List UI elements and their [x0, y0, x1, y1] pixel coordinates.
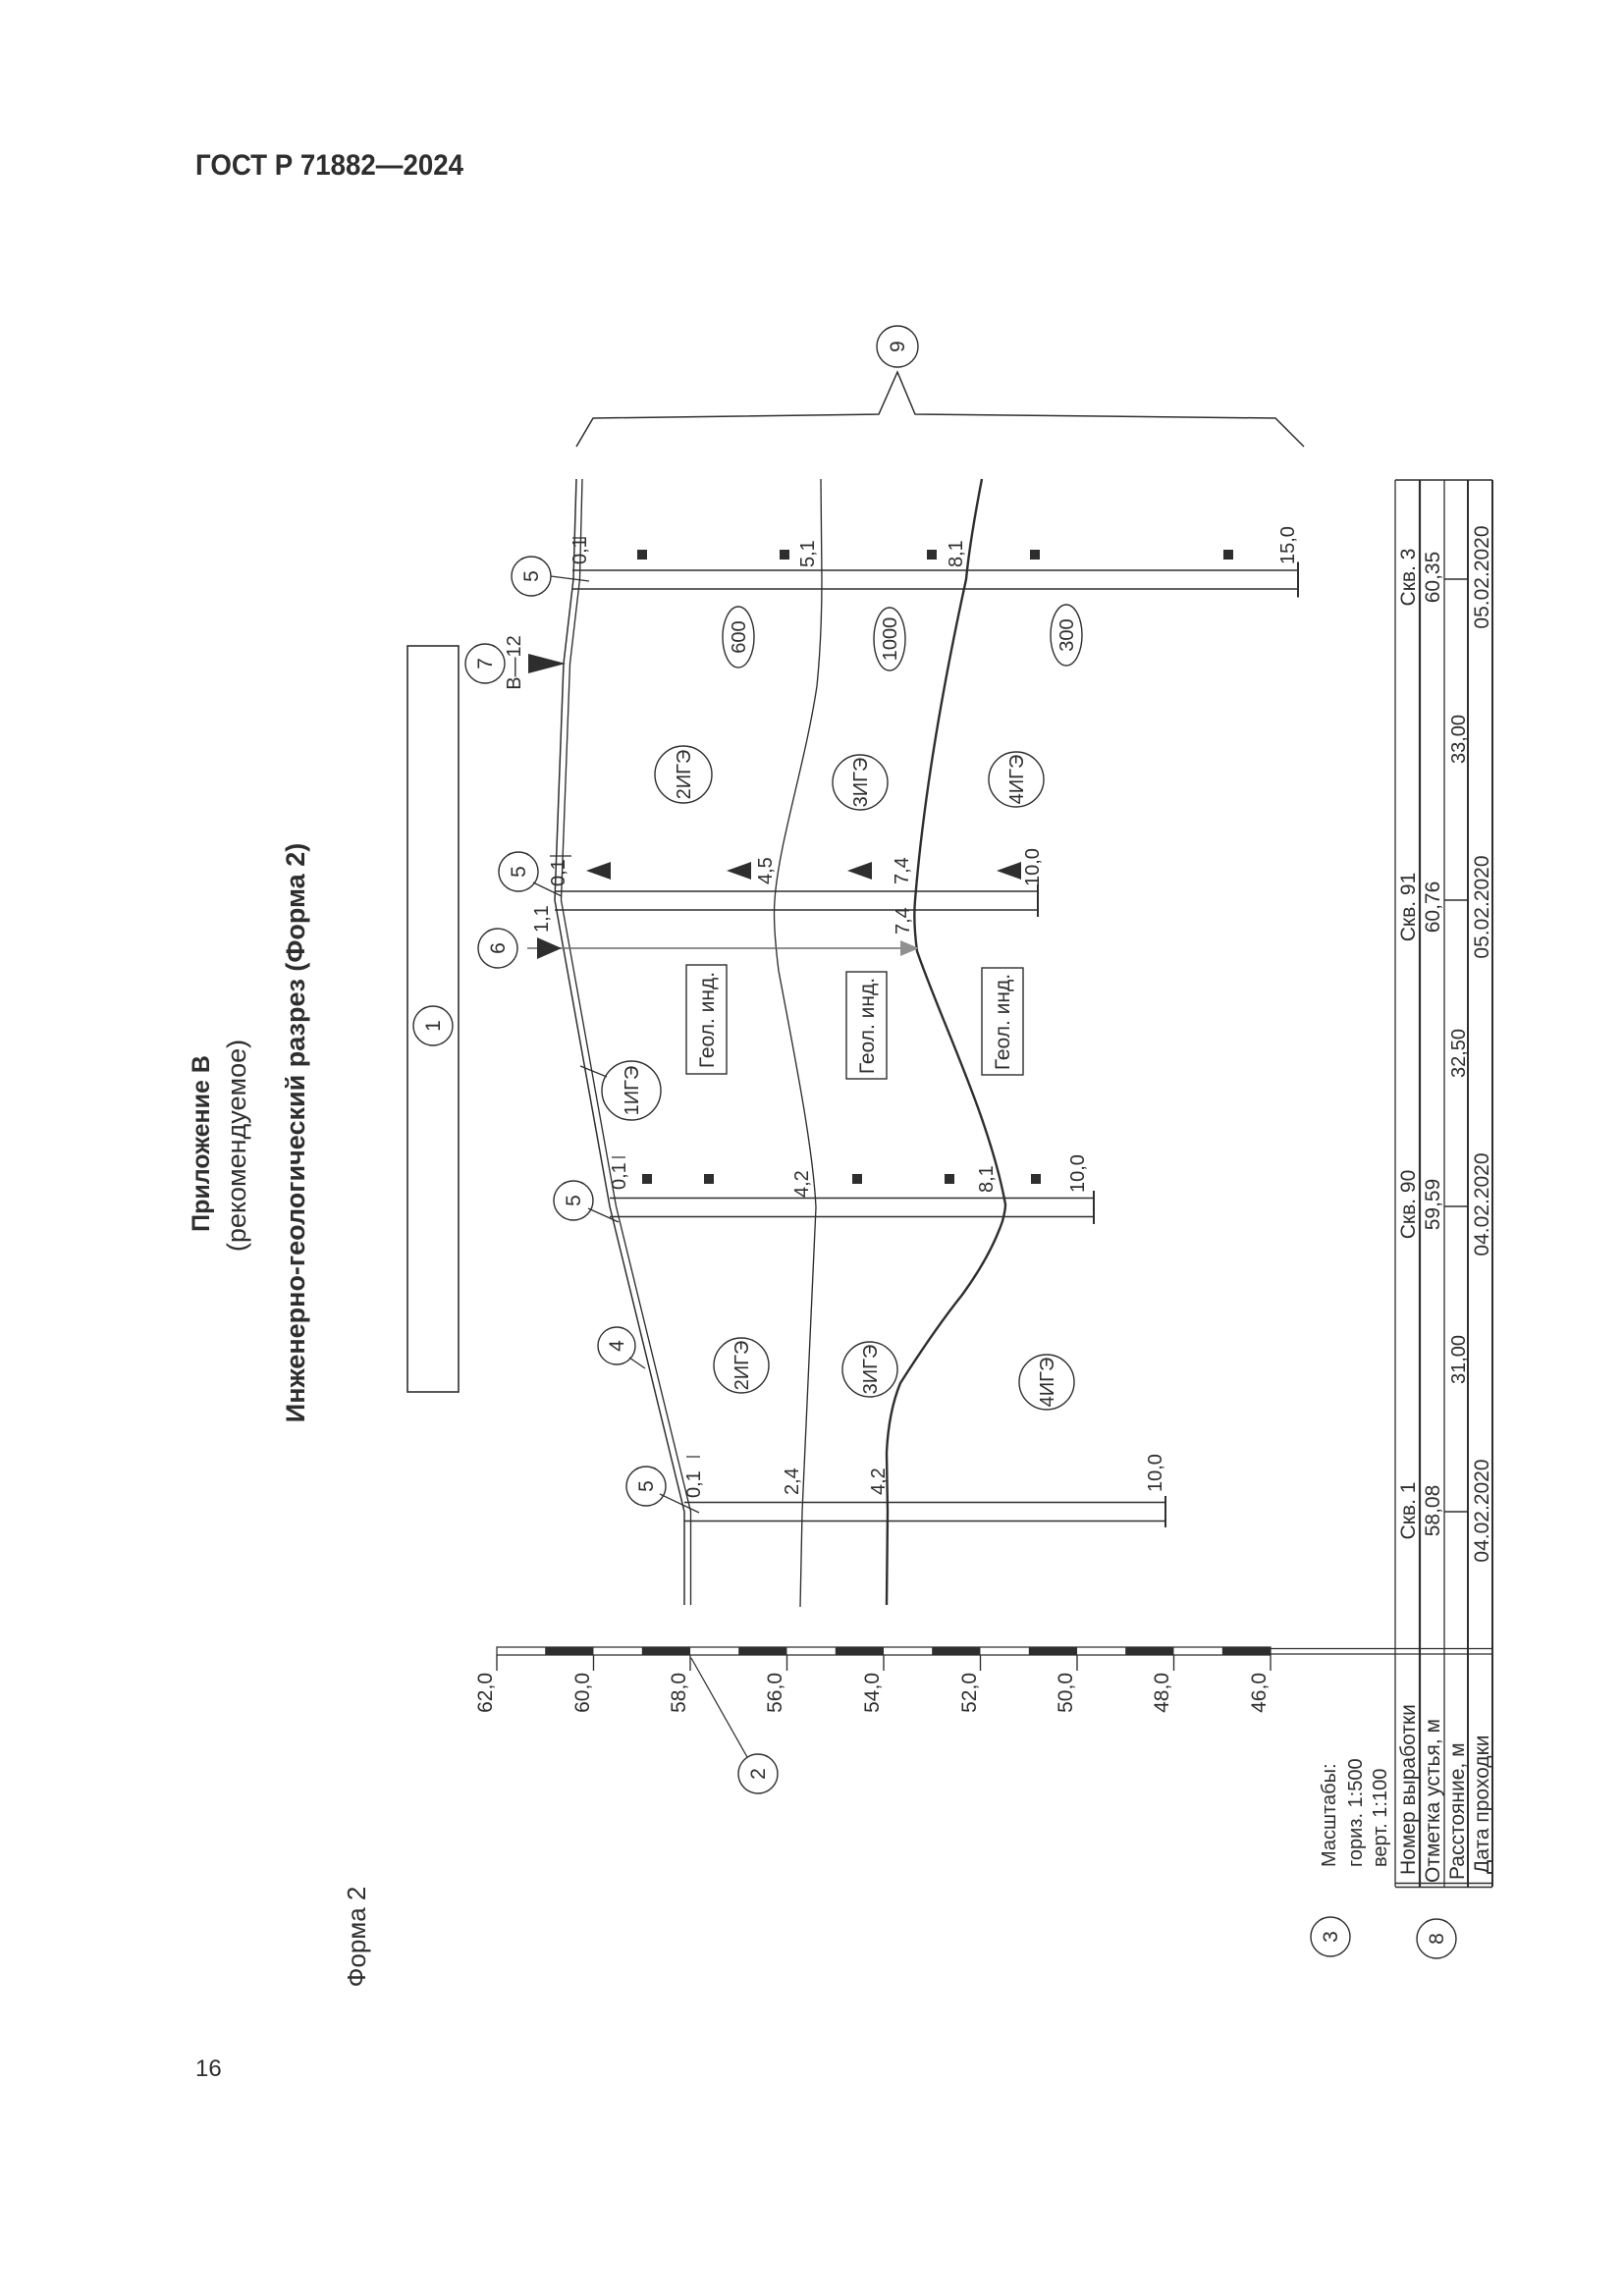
- svg-text:(рекомендуемое): (рекомендуемое): [222, 1040, 251, 1252]
- svg-text:3ИГЭ: 3ИГЭ: [860, 1345, 882, 1395]
- svg-text:Скв. 3: Скв. 3: [1397, 549, 1420, 607]
- svg-text:0,1: 0,1: [683, 1470, 705, 1498]
- svg-text:2: 2: [747, 1768, 770, 1780]
- svg-text:3ИГЭ: 3ИГЭ: [850, 758, 872, 808]
- svg-text:Скв. 1: Скв. 1: [1397, 1482, 1420, 1540]
- svg-text:1: 1: [422, 1020, 445, 1032]
- svg-text:46,0: 46,0: [1248, 1673, 1271, 1713]
- svg-text:верт. 1:100: верт. 1:100: [1370, 1769, 1391, 1867]
- svg-text:7: 7: [474, 658, 497, 669]
- svg-text:05.02.2020: 05.02.2020: [1471, 855, 1493, 958]
- svg-text:8,1: 8,1: [976, 1165, 998, 1193]
- svg-text:Скв. 90: Скв. 90: [1397, 1170, 1420, 1240]
- svg-text:0,1: 0,1: [609, 1162, 630, 1190]
- svg-text:Скв. 91: Скв. 91: [1397, 873, 1420, 942]
- svg-text:1000: 1000: [880, 617, 901, 662]
- svg-text:52,0: 52,0: [958, 1673, 981, 1713]
- svg-text:Инженерно-геологический разрез: Инженерно-геологический разрез (Форма 2): [281, 843, 310, 1422]
- svg-text:62,0: 62,0: [474, 1673, 497, 1713]
- svg-text:5: 5: [563, 1195, 585, 1206]
- svg-text:Геол. инд.: Геол. инд.: [992, 974, 1014, 1070]
- svg-text:Номер выработки: Номер выработки: [1397, 1704, 1420, 1875]
- svg-text:5,1: 5,1: [797, 540, 819, 567]
- svg-text:60,0: 60,0: [571, 1673, 594, 1713]
- svg-text:6: 6: [487, 942, 510, 954]
- svg-text:2ИГЭ: 2ИГЭ: [731, 1341, 753, 1391]
- svg-text:1ИГЭ: 1ИГЭ: [622, 1066, 643, 1116]
- svg-text:600: 600: [729, 620, 750, 653]
- svg-text:300: 300: [1056, 618, 1078, 651]
- svg-text:Форма 2: Форма 2: [342, 1887, 371, 1988]
- svg-text:32,50: 32,50: [1448, 1029, 1470, 1078]
- svg-text:04.02.2020: 04.02.2020: [1471, 1152, 1493, 1255]
- svg-text:54,0: 54,0: [861, 1673, 884, 1713]
- svg-text:Геол. инд.: Геол. инд.: [696, 972, 719, 1068]
- svg-text:гориз. 1:500: гориз. 1:500: [1345, 1758, 1367, 1867]
- svg-text:58,0: 58,0: [668, 1673, 690, 1713]
- svg-text:31,00: 31,00: [1448, 1335, 1470, 1384]
- svg-text:4: 4: [606, 1340, 628, 1352]
- svg-text:5: 5: [520, 570, 543, 582]
- svg-text:10,0: 10,0: [1022, 848, 1044, 886]
- svg-text:Масштабы:: Масштабы:: [1319, 1764, 1340, 1868]
- svg-text:ГОСТ Р 71882—2024: ГОСТ Р 71882—2024: [195, 149, 463, 182]
- svg-text:58,08: 58,08: [1422, 1485, 1444, 1537]
- svg-text:60,76: 60,76: [1422, 881, 1444, 934]
- svg-text:7,4: 7,4: [892, 857, 913, 884]
- svg-text:59,59: 59,59: [1422, 1179, 1444, 1231]
- svg-text:50,0: 50,0: [1055, 1673, 1077, 1713]
- svg-text:4,2: 4,2: [868, 1468, 890, 1495]
- svg-text:2,4: 2,4: [782, 1468, 803, 1495]
- svg-text:10,0: 10,0: [1145, 1454, 1166, 1492]
- svg-text:15,0: 15,0: [1277, 526, 1299, 564]
- svg-text:16: 16: [195, 2056, 222, 2082]
- svg-text:10,0: 10,0: [1067, 1154, 1089, 1193]
- svg-text:8,1: 8,1: [946, 540, 967, 567]
- svg-text:0,1: 0,1: [548, 859, 569, 886]
- svg-text:8: 8: [1426, 1933, 1448, 1945]
- svg-text:9: 9: [887, 341, 909, 352]
- svg-text:1,1: 1,1: [531, 905, 553, 933]
- svg-text:7,4: 7,4: [893, 907, 914, 934]
- svg-text:56,0: 56,0: [764, 1673, 786, 1713]
- svg-text:3: 3: [1320, 1931, 1342, 1943]
- svg-text:4ИГЭ: 4ИГЭ: [1006, 755, 1028, 805]
- svg-text:4,5: 4,5: [755, 857, 777, 884]
- svg-text:В—12: В—12: [504, 635, 525, 690]
- svg-text:Дата проходки: Дата проходки: [1471, 1735, 1493, 1874]
- svg-text:48,0: 48,0: [1151, 1673, 1173, 1713]
- svg-text:Расстояние, м: Расстояние, м: [1446, 1742, 1469, 1880]
- svg-text:4,2: 4,2: [791, 1170, 813, 1198]
- svg-text:0,1: 0,1: [569, 537, 591, 564]
- svg-text:04.02.2020: 04.02.2020: [1471, 1459, 1493, 1562]
- svg-text:60,35: 60,35: [1422, 552, 1444, 604]
- svg-text:05.02.2020: 05.02.2020: [1471, 525, 1493, 628]
- svg-text:2ИГЭ: 2ИГЭ: [674, 750, 695, 800]
- svg-text:Геол. инд.: Геол. инд.: [856, 978, 879, 1074]
- svg-text:5: 5: [635, 1480, 658, 1492]
- svg-text:Приложение В: Приложение В: [188, 1055, 215, 1232]
- svg-text:5: 5: [508, 866, 530, 878]
- svg-text:Отметка устья, м: Отметка устья, м: [1422, 1719, 1444, 1883]
- svg-text:4ИГЭ: 4ИГЭ: [1037, 1358, 1058, 1408]
- svg-text:33,00: 33,00: [1448, 715, 1470, 764]
